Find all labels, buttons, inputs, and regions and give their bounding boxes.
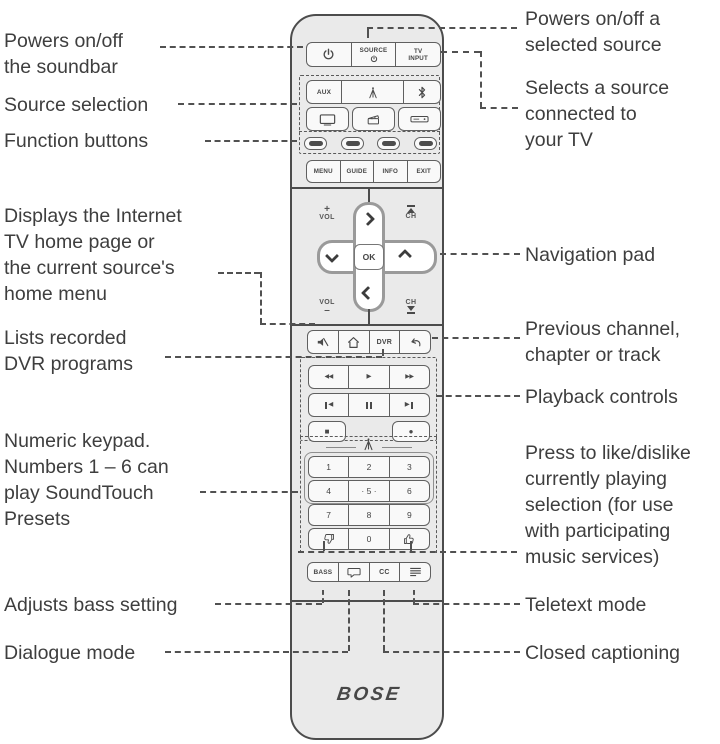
label-playback-controls: Playback controls <box>525 384 719 410</box>
menu-label: MENU <box>314 168 333 175</box>
skip-forward-icon <box>411 402 413 409</box>
key-5[interactable]: · 5 · <box>348 481 388 501</box>
label-dvr-programs: Lists recorded DVR programs <box>4 325 262 377</box>
leader-line <box>441 51 480 53</box>
return-icon <box>409 337 422 348</box>
keypad-row-1: 1 2 3 <box>308 456 430 478</box>
leader-line <box>367 27 369 38</box>
vol-text: VOL <box>319 214 335 221</box>
leader-line <box>413 603 520 605</box>
section-divider <box>290 600 444 602</box>
keypad-row-2: 4 · 5 · 6 <box>308 480 430 502</box>
bluetooth-icon <box>417 86 427 99</box>
label-bass: Adjusts bass setting <box>4 592 262 618</box>
play-button[interactable]: ▶ <box>348 366 388 388</box>
function-button[interactable] <box>414 137 437 150</box>
volume-down-label: VOL – <box>308 299 346 315</box>
key-0-label: 0 <box>367 534 372 544</box>
leader-line <box>178 103 297 105</box>
label-like-dislike: Press to like/dislike currently playing … <box>525 440 719 570</box>
leader-line <box>322 590 324 603</box>
function-button[interactable] <box>377 137 400 150</box>
key-7-label: 7 <box>326 510 331 520</box>
ch-text: CH <box>406 213 417 220</box>
mute-button[interactable] <box>308 331 338 353</box>
label-powers-soundbar: Powers on/off the soundbar <box>4 28 262 80</box>
menu-button[interactable]: MENU <box>307 161 340 182</box>
media-source-button[interactable] <box>352 107 395 131</box>
skip-forward-triangle: ▶ <box>405 402 410 408</box>
key-1[interactable]: 1 <box>309 457 348 477</box>
tv-source-button[interactable] <box>306 107 349 131</box>
function-button-pill <box>309 141 323 146</box>
channel-down-icon <box>407 306 415 314</box>
key-3[interactable]: 3 <box>389 457 429 477</box>
function-button[interactable] <box>341 137 364 150</box>
info-label: INFO <box>382 168 398 175</box>
power-icon <box>370 55 378 63</box>
source-button[interactable]: SOURCE <box>351 43 396 66</box>
cc-label: CC <box>379 569 390 576</box>
pad-connector-line <box>368 309 370 324</box>
shortcut-row: DVR <box>307 330 431 354</box>
leader-line <box>165 651 348 653</box>
guide-label: GUIDE <box>346 168 367 175</box>
bose-wordmark: BOSE <box>336 684 403 706</box>
power-button[interactable] <box>307 43 351 66</box>
leader-line <box>480 51 482 108</box>
key-6-label: 6 <box>407 486 412 496</box>
section-divider <box>290 187 444 189</box>
leader-line <box>383 651 520 653</box>
leader-line <box>200 491 298 493</box>
label-home-menu: Displays the Internet TV home page or th… <box>4 203 262 307</box>
menu-row: MENU GUIDE INFO EXIT <box>306 160 441 183</box>
brand-logo: BOSE <box>292 684 446 706</box>
previous-channel-button[interactable] <box>399 331 430 353</box>
key-7[interactable]: 7 <box>309 505 348 525</box>
leader-line <box>165 356 382 358</box>
diagram-canvas: Powers on/off the soundbar Source select… <box>0 0 720 744</box>
volume-up-label: + VOL <box>308 205 346 221</box>
bass-button[interactable]: BASS <box>308 563 338 581</box>
rewind-icon: ◀◀ <box>325 374 333 380</box>
home-icon <box>347 336 360 349</box>
audio-row: BASS CC <box>307 562 431 582</box>
leader-line <box>440 253 520 255</box>
mute-icon <box>316 336 329 348</box>
cable-box-source-button[interactable] <box>398 107 441 131</box>
aux-label: AUX <box>317 89 331 96</box>
pause-button[interactable] <box>348 394 388 416</box>
key-9-label: 9 <box>407 510 412 520</box>
info-button[interactable]: INFO <box>373 161 407 182</box>
label-source-selection: Source selection <box>4 92 262 118</box>
aux-button[interactable]: AUX <box>307 81 341 103</box>
channel-up-label: CH <box>392 205 430 220</box>
skip-back-triangle: ◀ <box>328 402 333 408</box>
keypad-row-3: 7 8 9 <box>308 504 430 526</box>
key-4-label: 4 <box>326 486 331 496</box>
play-icon: ▶ <box>366 374 371 380</box>
home-button[interactable] <box>338 331 369 353</box>
minus-sign: – <box>324 306 330 315</box>
stop-icon: ■ <box>325 427 330 436</box>
leader-line <box>383 590 385 651</box>
soundtouch-button[interactable] <box>341 81 403 103</box>
dialogue-icon <box>347 567 361 578</box>
exit-label: EXIT <box>416 168 431 175</box>
cable-box-icon <box>410 114 429 124</box>
key-2-label: 2 <box>367 462 372 472</box>
key-0[interactable]: 0 <box>348 529 388 549</box>
leader-line <box>205 140 297 142</box>
playback-row-2: ◀ ▶ <box>308 393 430 417</box>
guide-button[interactable]: GUIDE <box>340 161 374 182</box>
playback-row-1: ◀◀ ▶ ▶▶ <box>308 365 430 389</box>
fast-forward-button[interactable]: ▶▶ <box>389 366 429 388</box>
record-icon: ● <box>409 427 414 436</box>
source-label: SOURCE <box>360 47 388 54</box>
dvr-label: DVR <box>377 339 392 346</box>
bluetooth-button[interactable] <box>403 81 440 103</box>
leader-line <box>432 337 520 339</box>
leader-line <box>160 46 303 48</box>
key-2[interactable]: 2 <box>348 457 388 477</box>
remote-control: SOURCE TV INPUT AUX <box>290 14 444 740</box>
source-row-1: AUX <box>306 80 441 104</box>
key-4[interactable]: 4 <box>309 481 348 501</box>
function-button[interactable] <box>304 137 327 150</box>
leader-line <box>382 349 384 356</box>
teletext-icon <box>409 567 422 577</box>
leader-line <box>436 395 520 397</box>
key-9[interactable]: 9 <box>389 505 429 525</box>
preset-marker-line <box>326 447 356 448</box>
thumbs-up-button[interactable] <box>389 529 429 549</box>
dialogue-button[interactable] <box>338 563 369 581</box>
leader-line <box>367 27 517 29</box>
label-nav-pad: Navigation pad <box>525 242 719 268</box>
label-teletext: Teletext mode <box>525 592 719 618</box>
leader-line <box>410 541 412 551</box>
bass-label: BASS <box>313 569 332 576</box>
soundtouch-antenna-icon <box>366 86 380 99</box>
tv-icon <box>319 113 336 126</box>
leader-line <box>348 590 350 651</box>
function-button-pill <box>346 141 360 146</box>
key-6[interactable]: 6 <box>389 481 429 501</box>
leader-line <box>480 107 518 109</box>
leader-line <box>260 272 262 324</box>
leader-line <box>215 603 322 605</box>
thumbs-down-button[interactable] <box>309 529 348 549</box>
rewind-button[interactable]: ◀◀ <box>309 366 348 388</box>
channel-down-label: CH <box>392 299 430 314</box>
preset-marker-line <box>382 447 412 448</box>
power-icon <box>322 48 335 61</box>
fast-forward-icon: ▶▶ <box>405 374 413 380</box>
label-power-source: Powers on/off a selected source <box>525 6 719 58</box>
key-5-label: · 5 · <box>361 486 376 496</box>
tv-input-button[interactable]: TV INPUT <box>395 43 440 66</box>
function-button-pill <box>419 141 433 146</box>
ok-button[interactable]: OK <box>354 244 384 270</box>
plus-sign: + <box>324 205 330 214</box>
key-8[interactable]: 8 <box>348 505 388 525</box>
ok-label: OK <box>363 252 376 262</box>
function-button-pill <box>382 141 396 146</box>
teletext-button[interactable] <box>399 563 430 581</box>
leader-line <box>298 551 517 553</box>
leader-line <box>323 541 325 551</box>
pause-icon <box>366 402 368 409</box>
leader-line <box>260 323 315 325</box>
channel-up-icon <box>407 205 415 213</box>
exit-button[interactable]: EXIT <box>407 161 441 182</box>
skip-forward-button[interactable]: ▶ <box>389 394 429 416</box>
source-function-divider <box>299 131 440 132</box>
skip-back-icon <box>325 402 327 409</box>
skip-back-button[interactable]: ◀ <box>309 394 348 416</box>
key-3-label: 3 <box>407 462 412 472</box>
key-8-label: 8 <box>367 510 372 520</box>
key-1-label: 1 <box>326 462 331 472</box>
leader-line <box>413 590 415 603</box>
leader-line <box>218 272 260 274</box>
label-closed-captioning: Closed captioning <box>525 640 719 666</box>
cc-button[interactable]: CC <box>369 563 400 581</box>
label-dialogue: Dialogue mode <box>4 640 262 666</box>
soundtouch-antenna-icon <box>361 437 376 451</box>
tv-input-label: TV INPUT <box>408 48 428 62</box>
power-row: SOURCE TV INPUT <box>306 42 441 67</box>
pause-icon <box>370 402 372 409</box>
ch-text: CH <box>406 299 417 306</box>
media-player-icon <box>366 113 381 126</box>
label-previous-channel: Previous channel, chapter or track <box>525 316 719 368</box>
label-numeric-keypad: Numeric keypad. Numbers 1 – 6 can play S… <box>4 428 262 532</box>
label-tv-input: Selects a source connected to your TV <box>525 75 719 153</box>
